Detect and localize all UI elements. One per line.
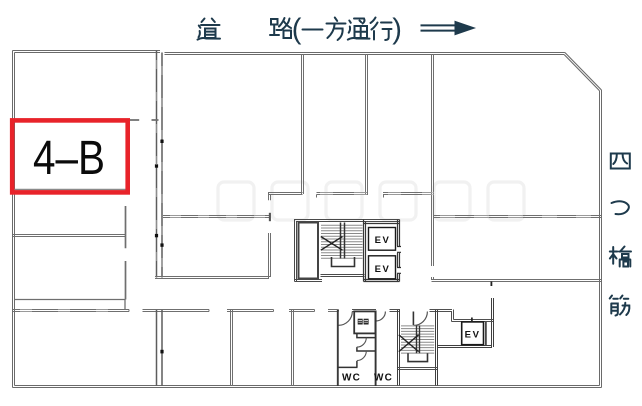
- svg-text:WC: WC: [374, 373, 393, 384]
- svg-text:EV: EV: [465, 330, 481, 341]
- svg-text:(: (: [292, 14, 302, 46]
- svg-text:EV: EV: [375, 264, 391, 275]
- svg-text:EV: EV: [375, 235, 391, 246]
- svg-text:WC: WC: [342, 373, 361, 384]
- svg-text:): ): [392, 14, 402, 46]
- svg-text:4–B: 4–B: [33, 132, 105, 185]
